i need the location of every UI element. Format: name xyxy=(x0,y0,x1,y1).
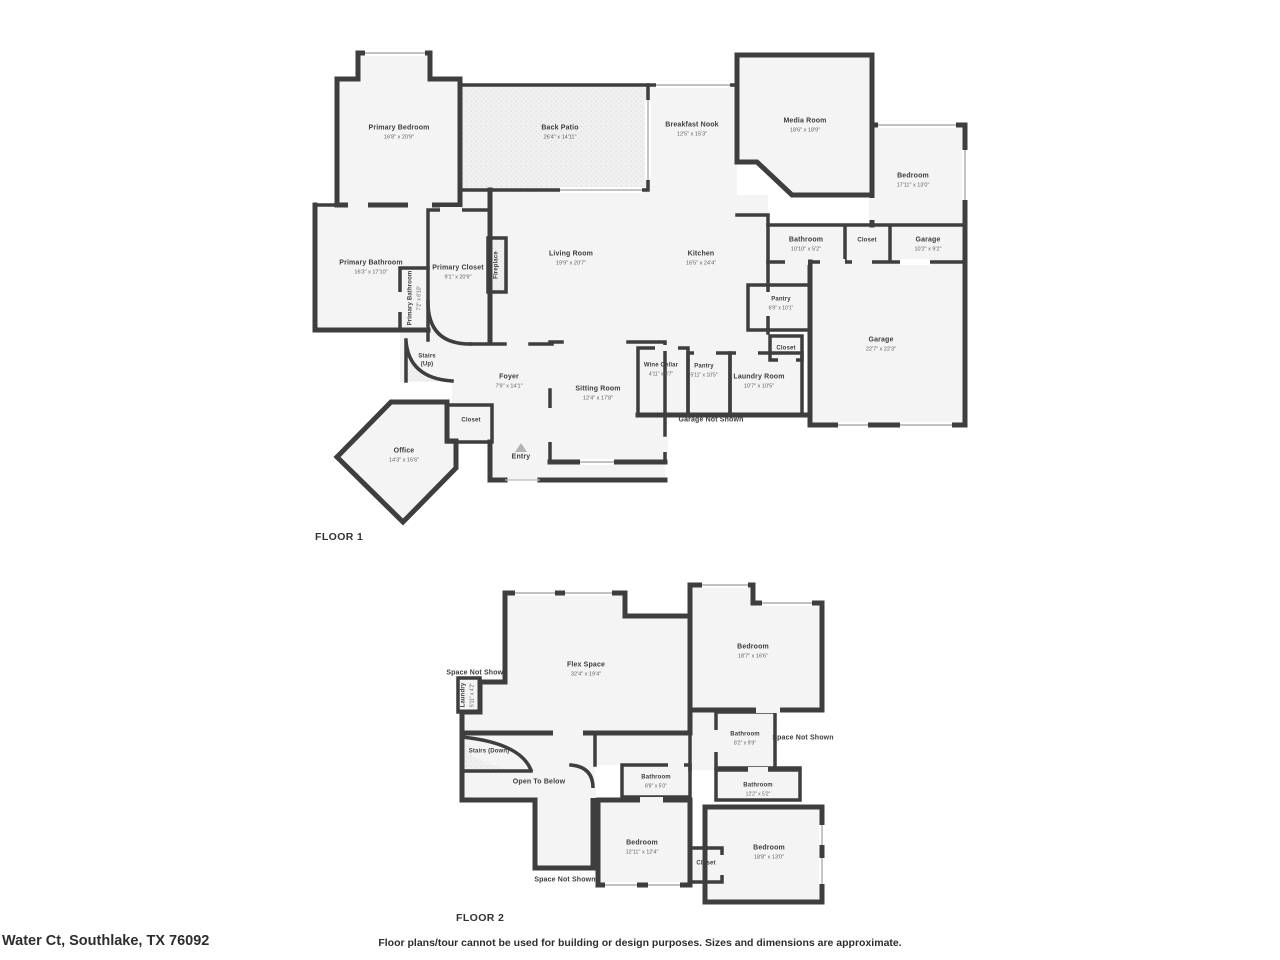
floor1-title: FLOOR 1 xyxy=(315,531,363,543)
floorplan-drawing xyxy=(0,0,1280,960)
floor2-title: FLOOR 2 xyxy=(456,912,504,924)
floor2-room-fills xyxy=(458,585,822,902)
disclaimer-text: Floor plans/tour cannot be used for buil… xyxy=(0,937,1280,949)
